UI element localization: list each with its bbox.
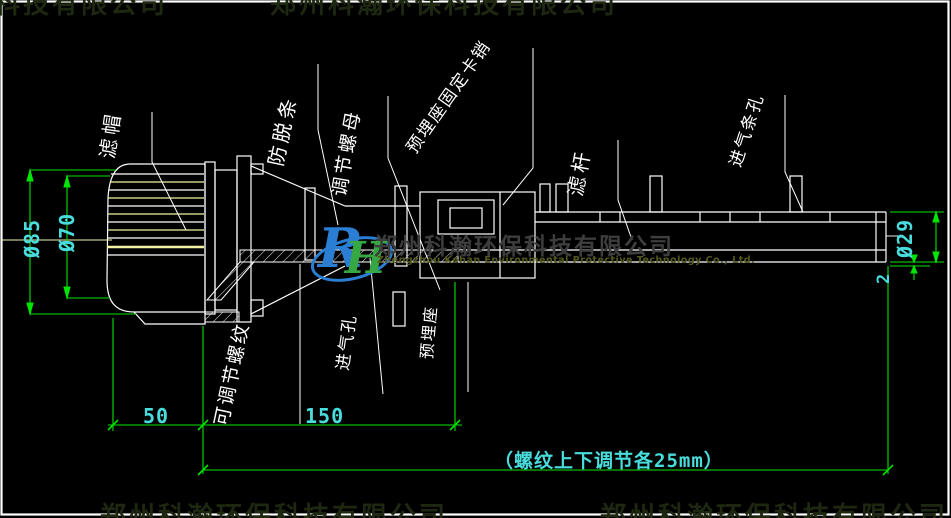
dim-length-150: 150 <box>305 404 344 428</box>
leader-rod <box>618 140 632 240</box>
watermark-tile-top: 郑州科瀚环保科技有限公司 <box>270 0 618 21</box>
filter-cap-slits <box>107 174 204 255</box>
dim-length-50: 50 <box>143 404 169 428</box>
air-slot-tab <box>650 176 662 212</box>
anti-slip-tab <box>305 188 315 260</box>
leader-air-slots <box>785 95 803 212</box>
dim-rod-diameter: Ø29 <box>895 219 915 258</box>
filter-cap-outline <box>107 164 205 324</box>
watermark-tile-bottom-right: 郑州科瀚环保科技有限公司 <box>600 496 948 518</box>
dim-slot-gap-2: 2 <box>874 273 894 284</box>
watermark-tile-top-left: 郑州科瀚环保科技有限公司 <box>0 0 168 21</box>
watermark-company-name-en: Zhengzhou Kehan Environmental Protective… <box>377 255 755 266</box>
dim-thread-adjust-note: （螺纹上下调节各25mm） <box>494 446 724 473</box>
leader-embed-pin <box>503 48 533 205</box>
part-label-embed-seat: 预埋座 <box>416 304 443 360</box>
dimension-lines <box>27 170 944 475</box>
dim-cap-outer-diameter: Ø85 <box>22 219 42 258</box>
leader-cap <box>152 112 186 230</box>
leader-anti-slip <box>318 64 338 225</box>
watermark-tile-bottom-left: 郑州科瀚环保科技有限公司 <box>100 496 448 518</box>
dim-cap-inner-diameter: Ø70 <box>57 213 77 252</box>
cad-viewport: 郑州科瀚环保科技有限公司 郑州科瀚环保科技有限公司 郑州科瀚环保科技有限公司 郑… <box>0 0 951 518</box>
